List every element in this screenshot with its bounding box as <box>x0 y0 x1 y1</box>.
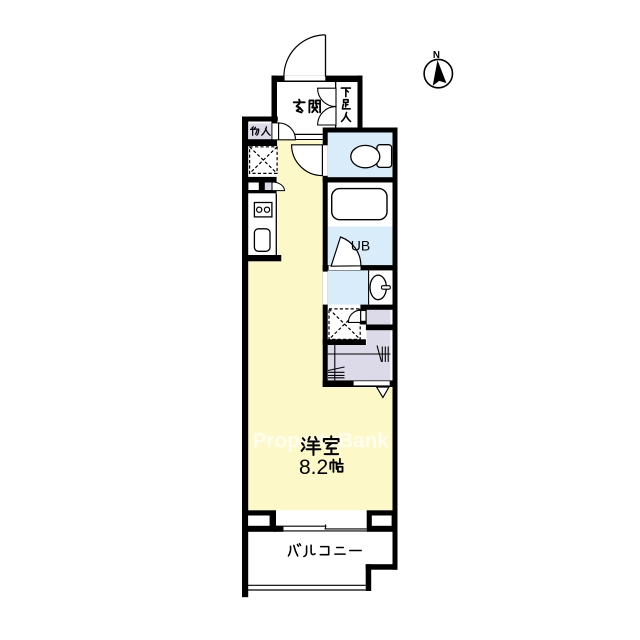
svg-text:8.2: 8.2 <box>299 456 328 479</box>
svg-text:UB: UB <box>351 238 370 254</box>
svg-text:N: N <box>433 50 440 61</box>
